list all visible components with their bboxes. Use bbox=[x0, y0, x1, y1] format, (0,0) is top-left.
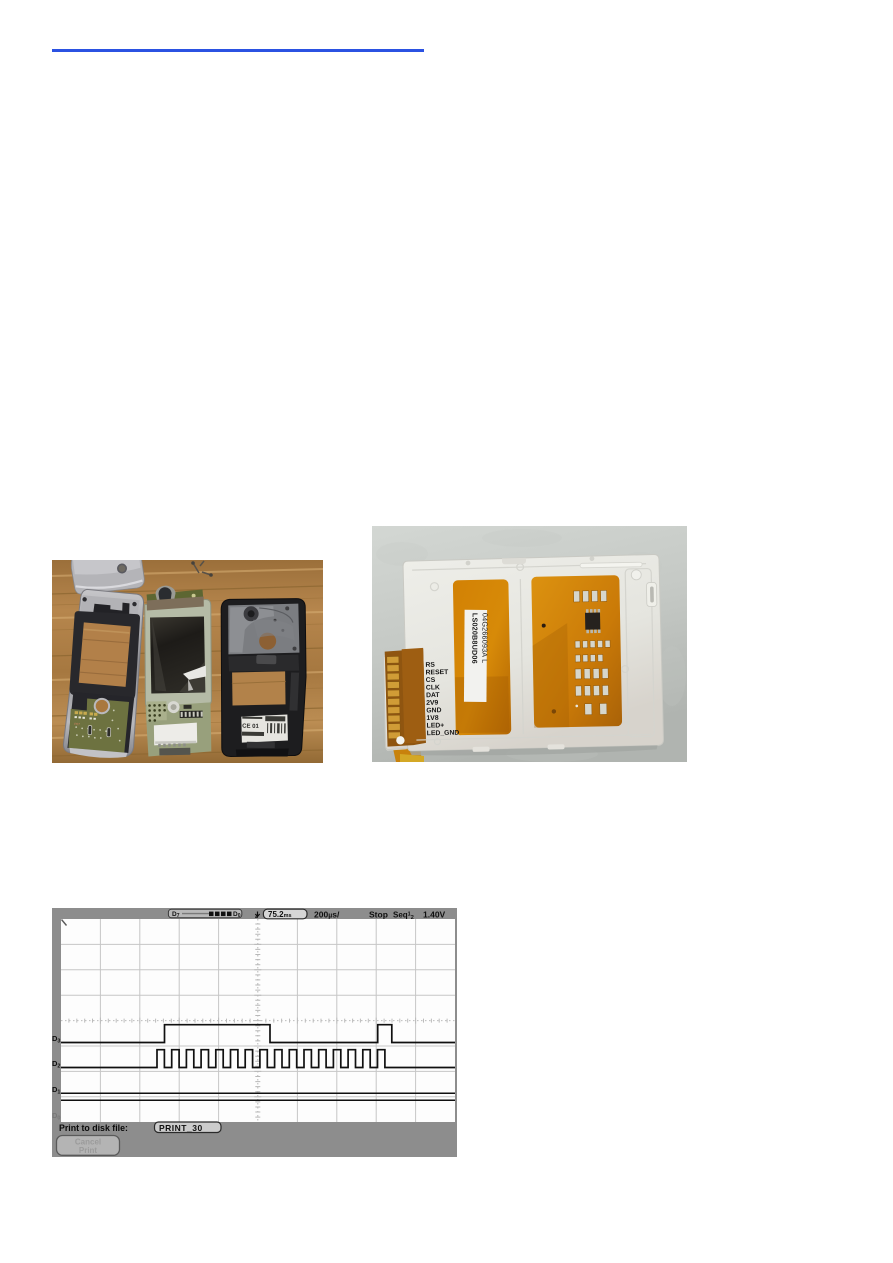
svg-text:D7: D7 bbox=[172, 911, 180, 919]
svg-text:1.40V: 1.40V bbox=[423, 910, 446, 920]
svg-text:CE 01: CE 01 bbox=[242, 724, 259, 730]
svg-text:200µs/: 200µs/ bbox=[314, 910, 340, 920]
svg-text:Stop: Stop bbox=[369, 910, 388, 920]
svg-text:04G266093A L: 04G266093A L bbox=[480, 613, 489, 663]
svg-text:CLK: CLK bbox=[426, 684, 440, 691]
svg-text:RS: RS bbox=[425, 662, 435, 669]
svg-text:1V8: 1V8 bbox=[426, 715, 438, 722]
svg-text:RESET: RESET bbox=[426, 669, 450, 676]
svg-text:GND: GND bbox=[426, 707, 441, 714]
svg-text:LED+: LED+ bbox=[427, 722, 445, 729]
svg-text:P07: P07 bbox=[74, 722, 80, 726]
svg-text:2V9: 2V9 bbox=[426, 700, 438, 707]
svg-text:CS: CS bbox=[426, 677, 436, 684]
svg-text:Print: Print bbox=[79, 1146, 98, 1155]
svg-text:PRINT_30: PRINT_30 bbox=[159, 1123, 203, 1133]
svg-text:Print to disk file:: Print to disk file: bbox=[59, 1123, 128, 1133]
svg-text:Seq12: Seq12 bbox=[393, 911, 414, 922]
svg-text:DAT: DAT bbox=[426, 692, 440, 699]
svg-text:D0: D0 bbox=[233, 911, 241, 919]
svg-text:LED_GND: LED_GND bbox=[427, 730, 460, 738]
svg-text:LS020B8UD06: LS020B8UD06 bbox=[470, 613, 479, 664]
